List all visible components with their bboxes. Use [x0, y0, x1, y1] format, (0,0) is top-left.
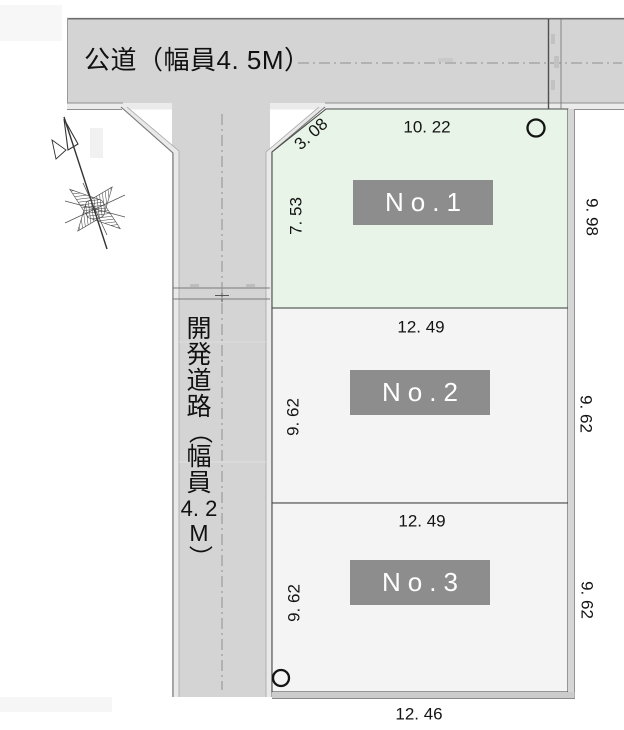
development-road-label: 開 発 道 路 （ 幅 員 4. 2 M ） — [176, 316, 222, 569]
dimension-lot3-left: 9. 62 — [286, 584, 303, 622]
site-plan-drawing — [0, 0, 624, 730]
dev-road-char: ） — [187, 545, 211, 569]
scan-artifact — [0, 697, 112, 712]
dimension-lot1-left: 7. 53 — [288, 197, 305, 235]
site-plan: 公道（幅員4. 5M） 開 発 道 路 （ 幅 員 4. 2 M ） No.1 … — [0, 0, 624, 730]
dev-road-char: 発 — [186, 342, 211, 368]
centerline-annotation-mark — [438, 58, 453, 62]
scan-artifact — [0, 5, 62, 41]
dev-road-char: 員 — [186, 470, 211, 496]
dimension-lot3-top: 12. 49 — [398, 513, 445, 530]
dimension-lot1-top: 10. 22 — [403, 119, 450, 136]
dev-road-char: 道 — [186, 368, 211, 394]
dev-road-char: M — [189, 521, 208, 545]
dev-road-char: （ — [187, 420, 211, 444]
public-road-label: 公道（幅員4. 5M） — [84, 47, 311, 73]
dimension-lot3-right: 9. 62 — [579, 581, 596, 619]
dev-road-char: 路 — [186, 394, 211, 420]
dimension-lot3-bottom: 12. 46 — [395, 706, 442, 723]
north-arrow-icon — [52, 117, 127, 249]
dev-road-char: 幅 — [186, 444, 211, 470]
dimension-lot2-right: 9. 62 — [578, 395, 595, 433]
lot2-number-badge: No.2 — [350, 370, 490, 415]
dimension-lot1-right: 9. 98 — [584, 198, 601, 236]
dimension-lot2-top: 12. 49 — [397, 319, 444, 336]
lot3-number-badge: No.3 — [350, 560, 490, 605]
lot1-number-badge: No.1 — [353, 180, 493, 225]
dev-road-char: 4. 2 — [181, 496, 218, 521]
dimension-lot2-left: 9. 62 — [285, 398, 302, 436]
dev-road-char: 開 — [186, 316, 211, 342]
